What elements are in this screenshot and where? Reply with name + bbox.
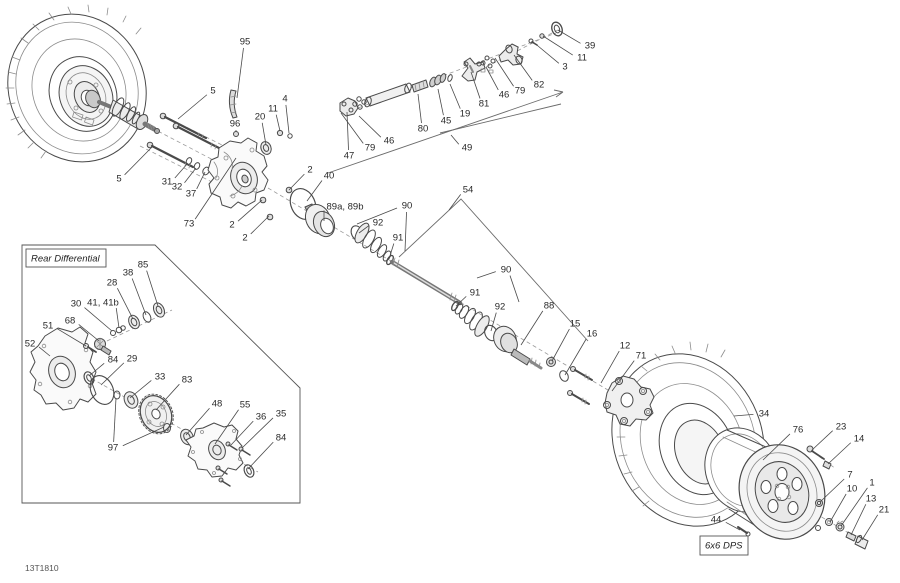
leader-line-31 [175,163,188,178]
callout-2: 2 [229,220,234,231]
callout-4: 4 [282,94,287,105]
leader-line-95 [237,48,244,98]
propeller-shaft-assembly [340,21,564,116]
leader-line-88 [521,311,543,345]
callout-92: 92 [495,302,506,313]
callout-11: 11 [268,104,278,115]
callout-13: 13 [866,494,877,505]
front-wheel-assembly [0,0,170,184]
leader-line-79 [341,113,363,143]
leader-line-11 [543,36,573,55]
callout-96: 96 [230,119,241,130]
callout-68: 68 [65,316,76,327]
callout-81: 81 [479,99,490,110]
callout-21: 21 [879,505,890,516]
callout-84: 84 [108,355,119,366]
callout-12: 12 [620,341,631,352]
callout-85: 85 [138,260,149,271]
front-differential-housing [208,90,320,223]
leader-line-23 [812,431,833,450]
callout-95: 95 [240,37,251,48]
callout-3: 3 [562,62,567,73]
callout-29: 29 [127,354,138,365]
callout-44: 44 [711,515,722,526]
leader-line-40 [307,181,322,201]
leader-line-4 [286,105,289,133]
leader-line-28 [117,288,133,319]
callout-46: 46 [384,136,395,147]
rear-differential-label-text: Rear Differential [31,254,101,265]
callout-54: 54 [463,185,474,196]
callout-35: 35 [276,409,287,420]
callout-28: 28 [107,278,118,289]
callout-82: 82 [534,80,545,91]
callout-46: 46 [499,90,510,101]
callout-71: 71 [636,351,647,362]
callout-80: 80 [418,124,429,135]
callout-34: 34 [759,409,770,420]
callout-20: 20 [255,112,266,123]
model-variant-label-text: 6x6 DPS [705,541,743,552]
leader-line-32 [184,168,196,183]
callout-32: 32 [172,182,183,193]
leader-line-85 [147,271,158,306]
leader-line-39 [558,30,581,43]
callout-38: 38 [123,268,134,279]
callout-37: 37 [186,189,197,200]
leader-line-97 [123,427,164,446]
leader-line-97 [114,398,116,442]
parts-diagram: Rear Differential 6x6 DPS 13T1810 955411… [0,0,900,583]
callout-2: 2 [242,233,247,244]
callout-79: 79 [365,143,376,154]
leader-line-2 [289,174,304,190]
leader-line-90 [510,276,519,302]
leader-line-19 [450,84,460,109]
callout-1: 1 [869,478,874,489]
leader-line-49 [451,135,459,144]
diagram-canvas: Rear Differential 6x6 DPS 13T1810 955411… [0,0,900,583]
leader-line-29 [101,363,124,385]
leader-line-38 [132,279,146,315]
callout-83: 83 [182,375,193,386]
leader-line-90 [477,272,496,278]
callout-73: 73 [184,219,195,230]
callout-15: 15 [570,319,581,330]
callout-52: 52 [25,339,36,350]
callout-90: 90 [501,265,512,276]
leader-line-90 [405,212,407,251]
callout-14: 14 [854,434,865,445]
leader-line-11 [276,115,280,131]
callout-41, 41b: 41, 41b [87,298,119,309]
callout-76: 76 [793,425,804,436]
callout-90: 90 [402,201,413,212]
callout-55: 55 [240,400,251,411]
leader-line-46 [359,116,381,137]
leader-line-21 [862,515,878,540]
leader-line-46 [486,67,498,90]
leader-line-14 [828,443,851,464]
rear-differential-parts [30,301,256,486]
callout-2: 2 [307,165,312,176]
callout-39: 39 [585,41,596,52]
callout-10: 10 [847,484,858,495]
rear-differential-label: Rear Differential [26,249,106,267]
callout-49: 49 [462,143,473,154]
callout-36: 36 [256,412,267,423]
leader-line-54 [449,194,461,210]
callout-79: 79 [515,86,526,97]
leader-line-84 [248,442,273,469]
leader-line-80 [418,94,422,123]
callout-11: 11 [577,53,587,64]
callout-5: 5 [116,174,121,185]
callout-91: 91 [470,288,481,299]
leader-line-5 [125,147,152,175]
leader-line-2 [251,216,269,234]
callout-19: 19 [460,109,471,120]
callout-51: 51 [43,321,54,332]
callout-89a, 89b: 89a, 89b [327,202,364,213]
leader-line-41, 41b [116,308,119,328]
callout-30: 30 [71,299,82,310]
leader-line-3 [532,41,559,63]
callout-47: 47 [344,151,355,162]
callout-84: 84 [276,433,287,444]
leader-line-45 [438,89,443,115]
callout-5: 5 [210,86,215,97]
leader-line-10 [830,494,846,522]
leader-line-82 [514,55,532,80]
callout-40: 40 [324,171,335,182]
callout-7: 7 [847,470,852,481]
leader-line-5 [178,95,207,119]
callout-45: 45 [441,116,452,127]
callout-23: 23 [836,422,847,433]
callout-48: 48 [212,399,223,410]
leader-line-15 [552,329,569,361]
callout-92: 92 [373,218,384,229]
diagram-code: 13T1810 [25,563,59,573]
callout-88: 88 [544,301,555,312]
model-variant-label: 6x6 DPS [700,536,748,555]
callout-33: 33 [155,372,166,383]
callout-31: 31 [162,177,173,188]
callout-91: 91 [393,233,404,244]
leader-line-30 [84,308,112,331]
callout-97: 97 [108,443,119,454]
callout-16: 16 [587,329,598,340]
leader-line-47 [347,112,349,150]
